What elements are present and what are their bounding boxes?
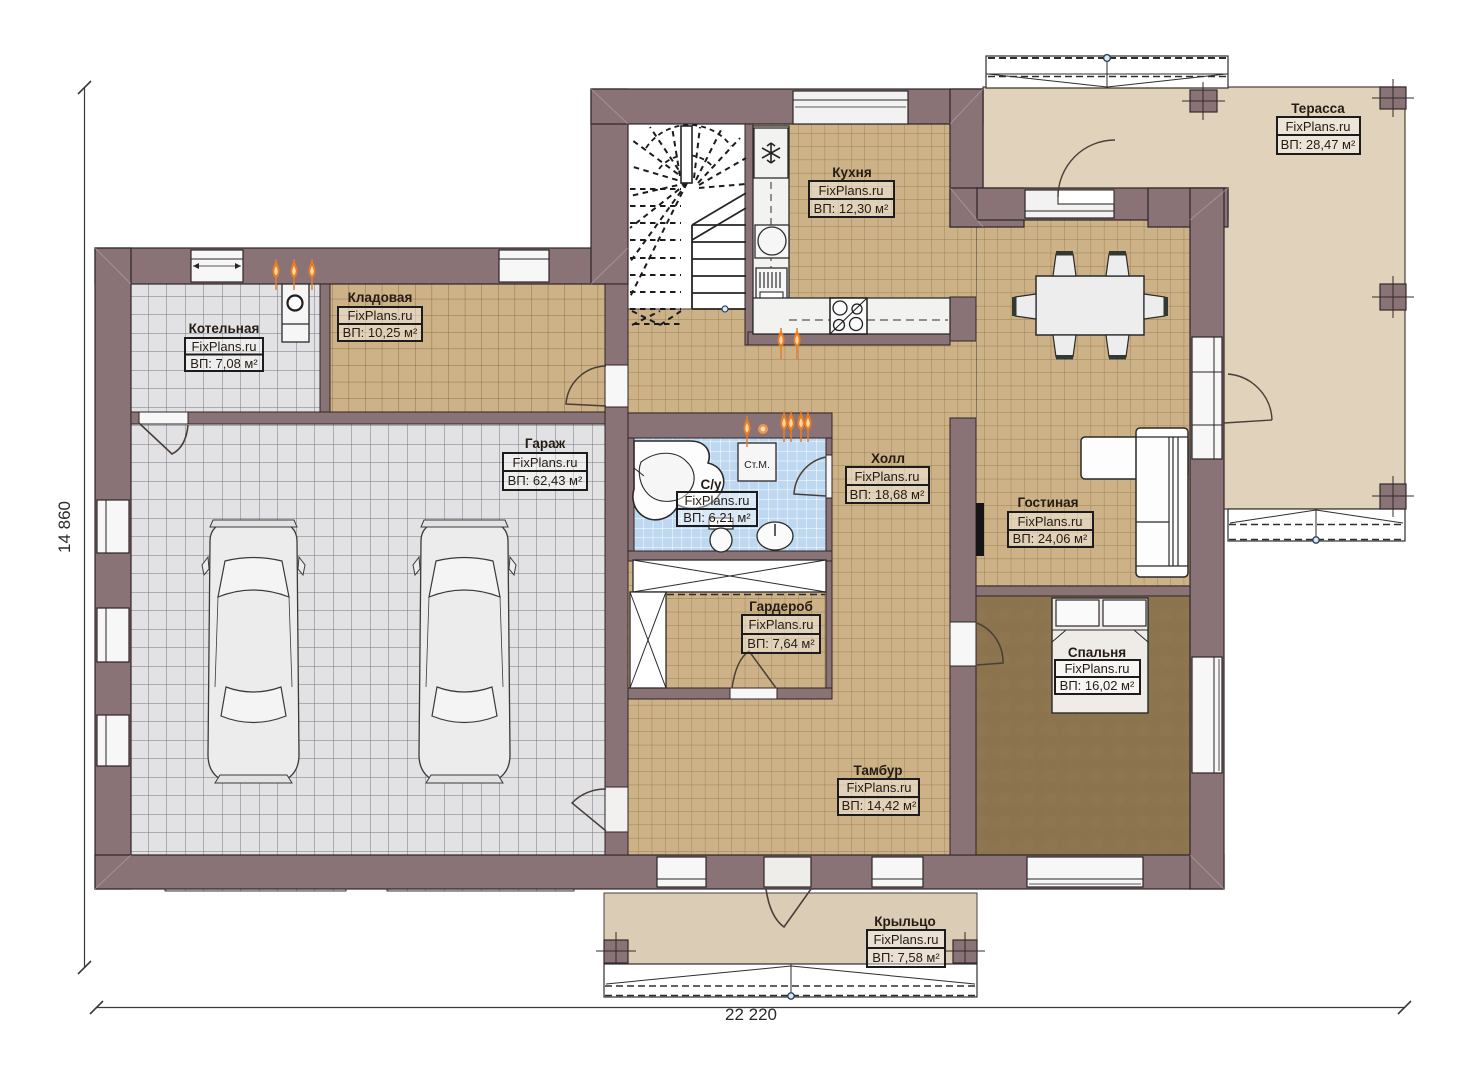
- svg-text:С/у: С/у: [700, 477, 722, 492]
- svg-text:ВП: 6,21 м²: ВП: 6,21 м²: [683, 510, 751, 525]
- svg-text:ВП: 24,06 м²: ВП: 24,06 м²: [1013, 531, 1088, 546]
- svg-text:FixPlans.ru: FixPlans.ru: [512, 455, 577, 470]
- svg-text:ВП: 12,30 м²: ВП: 12,30 м²: [814, 201, 889, 216]
- svg-text:Гардероб: Гардероб: [749, 599, 813, 614]
- svg-text:22 220: 22 220: [725, 1005, 777, 1024]
- svg-text:Тамбур: Тамбур: [854, 763, 903, 778]
- svg-text:ВП: 7,08 м²: ВП: 7,08 м²: [190, 356, 258, 371]
- svg-text:ВП: 18,68 м²: ВП: 18,68 м²: [850, 487, 925, 502]
- svg-text:Кухня: Кухня: [832, 165, 871, 180]
- svg-text:ВП: 16,02 м²: ВП: 16,02 м²: [1060, 678, 1135, 693]
- svg-text:ВП: 10,25 м²: ВП: 10,25 м²: [343, 325, 418, 340]
- svg-text:FixPlans.ru: FixPlans.ru: [748, 617, 813, 632]
- svg-text:ВП: 62,43 м²: ВП: 62,43 м²: [508, 473, 583, 488]
- svg-text:ВП: 28,47 м²: ВП: 28,47 м²: [1281, 137, 1356, 152]
- svg-text:FixPlans.ru: FixPlans.ru: [347, 308, 412, 323]
- svg-text:Крыльцо: Крыльцо: [874, 914, 935, 929]
- svg-text:FixPlans.ru: FixPlans.ru: [873, 932, 938, 947]
- svg-text:Кладовая: Кладовая: [348, 290, 413, 305]
- svg-text:ВП: 14,42 м²: ВП: 14,42 м²: [842, 798, 917, 813]
- svg-text:Гостиная: Гостиная: [1017, 495, 1078, 510]
- svg-text:FixPlans.ru: FixPlans.ru: [191, 339, 256, 354]
- svg-text:Гараж: Гараж: [525, 436, 566, 451]
- svg-text:FixPlans.ru: FixPlans.ru: [1017, 514, 1082, 529]
- svg-text:FixPlans.ru: FixPlans.ru: [818, 183, 883, 198]
- svg-text:Спальня: Спальня: [1068, 645, 1126, 660]
- svg-text:Терасса: Терасса: [1291, 101, 1345, 116]
- svg-text:FixPlans.ru: FixPlans.ru: [1285, 119, 1350, 134]
- svg-text:Ст.М.: Ст.М.: [744, 459, 770, 471]
- svg-text:FixPlans.ru: FixPlans.ru: [684, 493, 749, 508]
- svg-text:14 860: 14 860: [55, 501, 74, 553]
- svg-text:ВП: 7,58 м²: ВП: 7,58 м²: [872, 950, 940, 965]
- svg-text:FixPlans.ru: FixPlans.ru: [854, 469, 919, 484]
- svg-text:Котельная: Котельная: [189, 321, 260, 336]
- svg-text:FixPlans.ru: FixPlans.ru: [1064, 661, 1129, 676]
- svg-text:Холл: Холл: [871, 451, 905, 466]
- svg-text:ВП: 7,64 м²: ВП: 7,64 м²: [747, 636, 815, 651]
- svg-text:FixPlans.ru: FixPlans.ru: [846, 780, 911, 795]
